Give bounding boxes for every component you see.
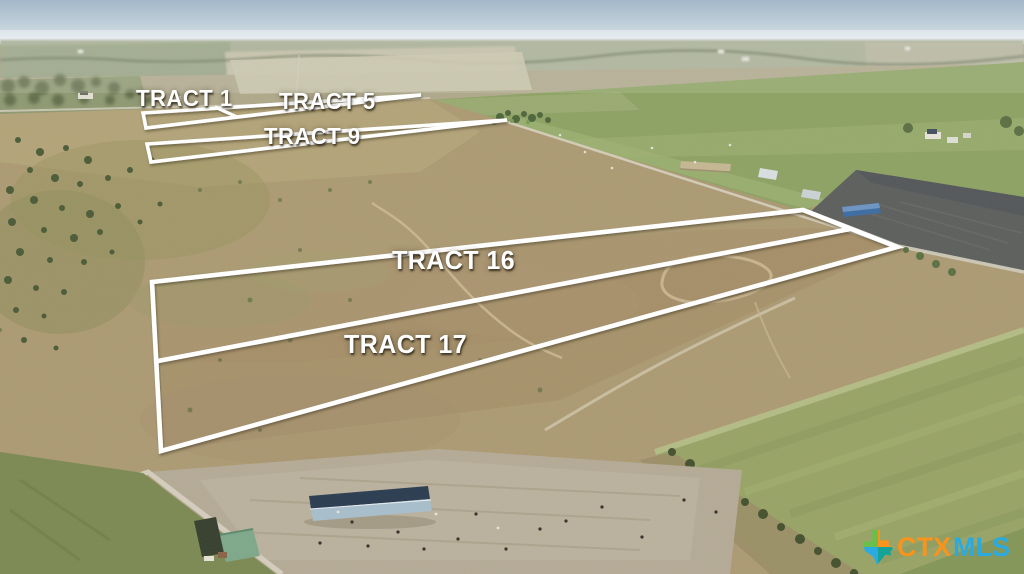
aerial-listing-photo: TRACT 1 TRACT 5 TRACT 9 TRACT 16 TRACT 1… [0, 0, 1024, 574]
tract-16-17-boundary [152, 210, 897, 451]
ctxmls-watermark: CTXMLS [861, 529, 1010, 565]
tract-9-label: TRACT 9 [264, 123, 361, 150]
tract-16-label: TRACT 16 [392, 245, 515, 276]
tract-17-label: TRACT 17 [344, 329, 467, 360]
mls-wordmark: MLS [953, 534, 1010, 561]
tract-1-label: TRACT 1 [136, 85, 233, 112]
tract-5-label: TRACT 5 [279, 88, 376, 115]
texas-map-icon [861, 529, 895, 565]
ctx-wordmark: CTX [897, 534, 951, 561]
